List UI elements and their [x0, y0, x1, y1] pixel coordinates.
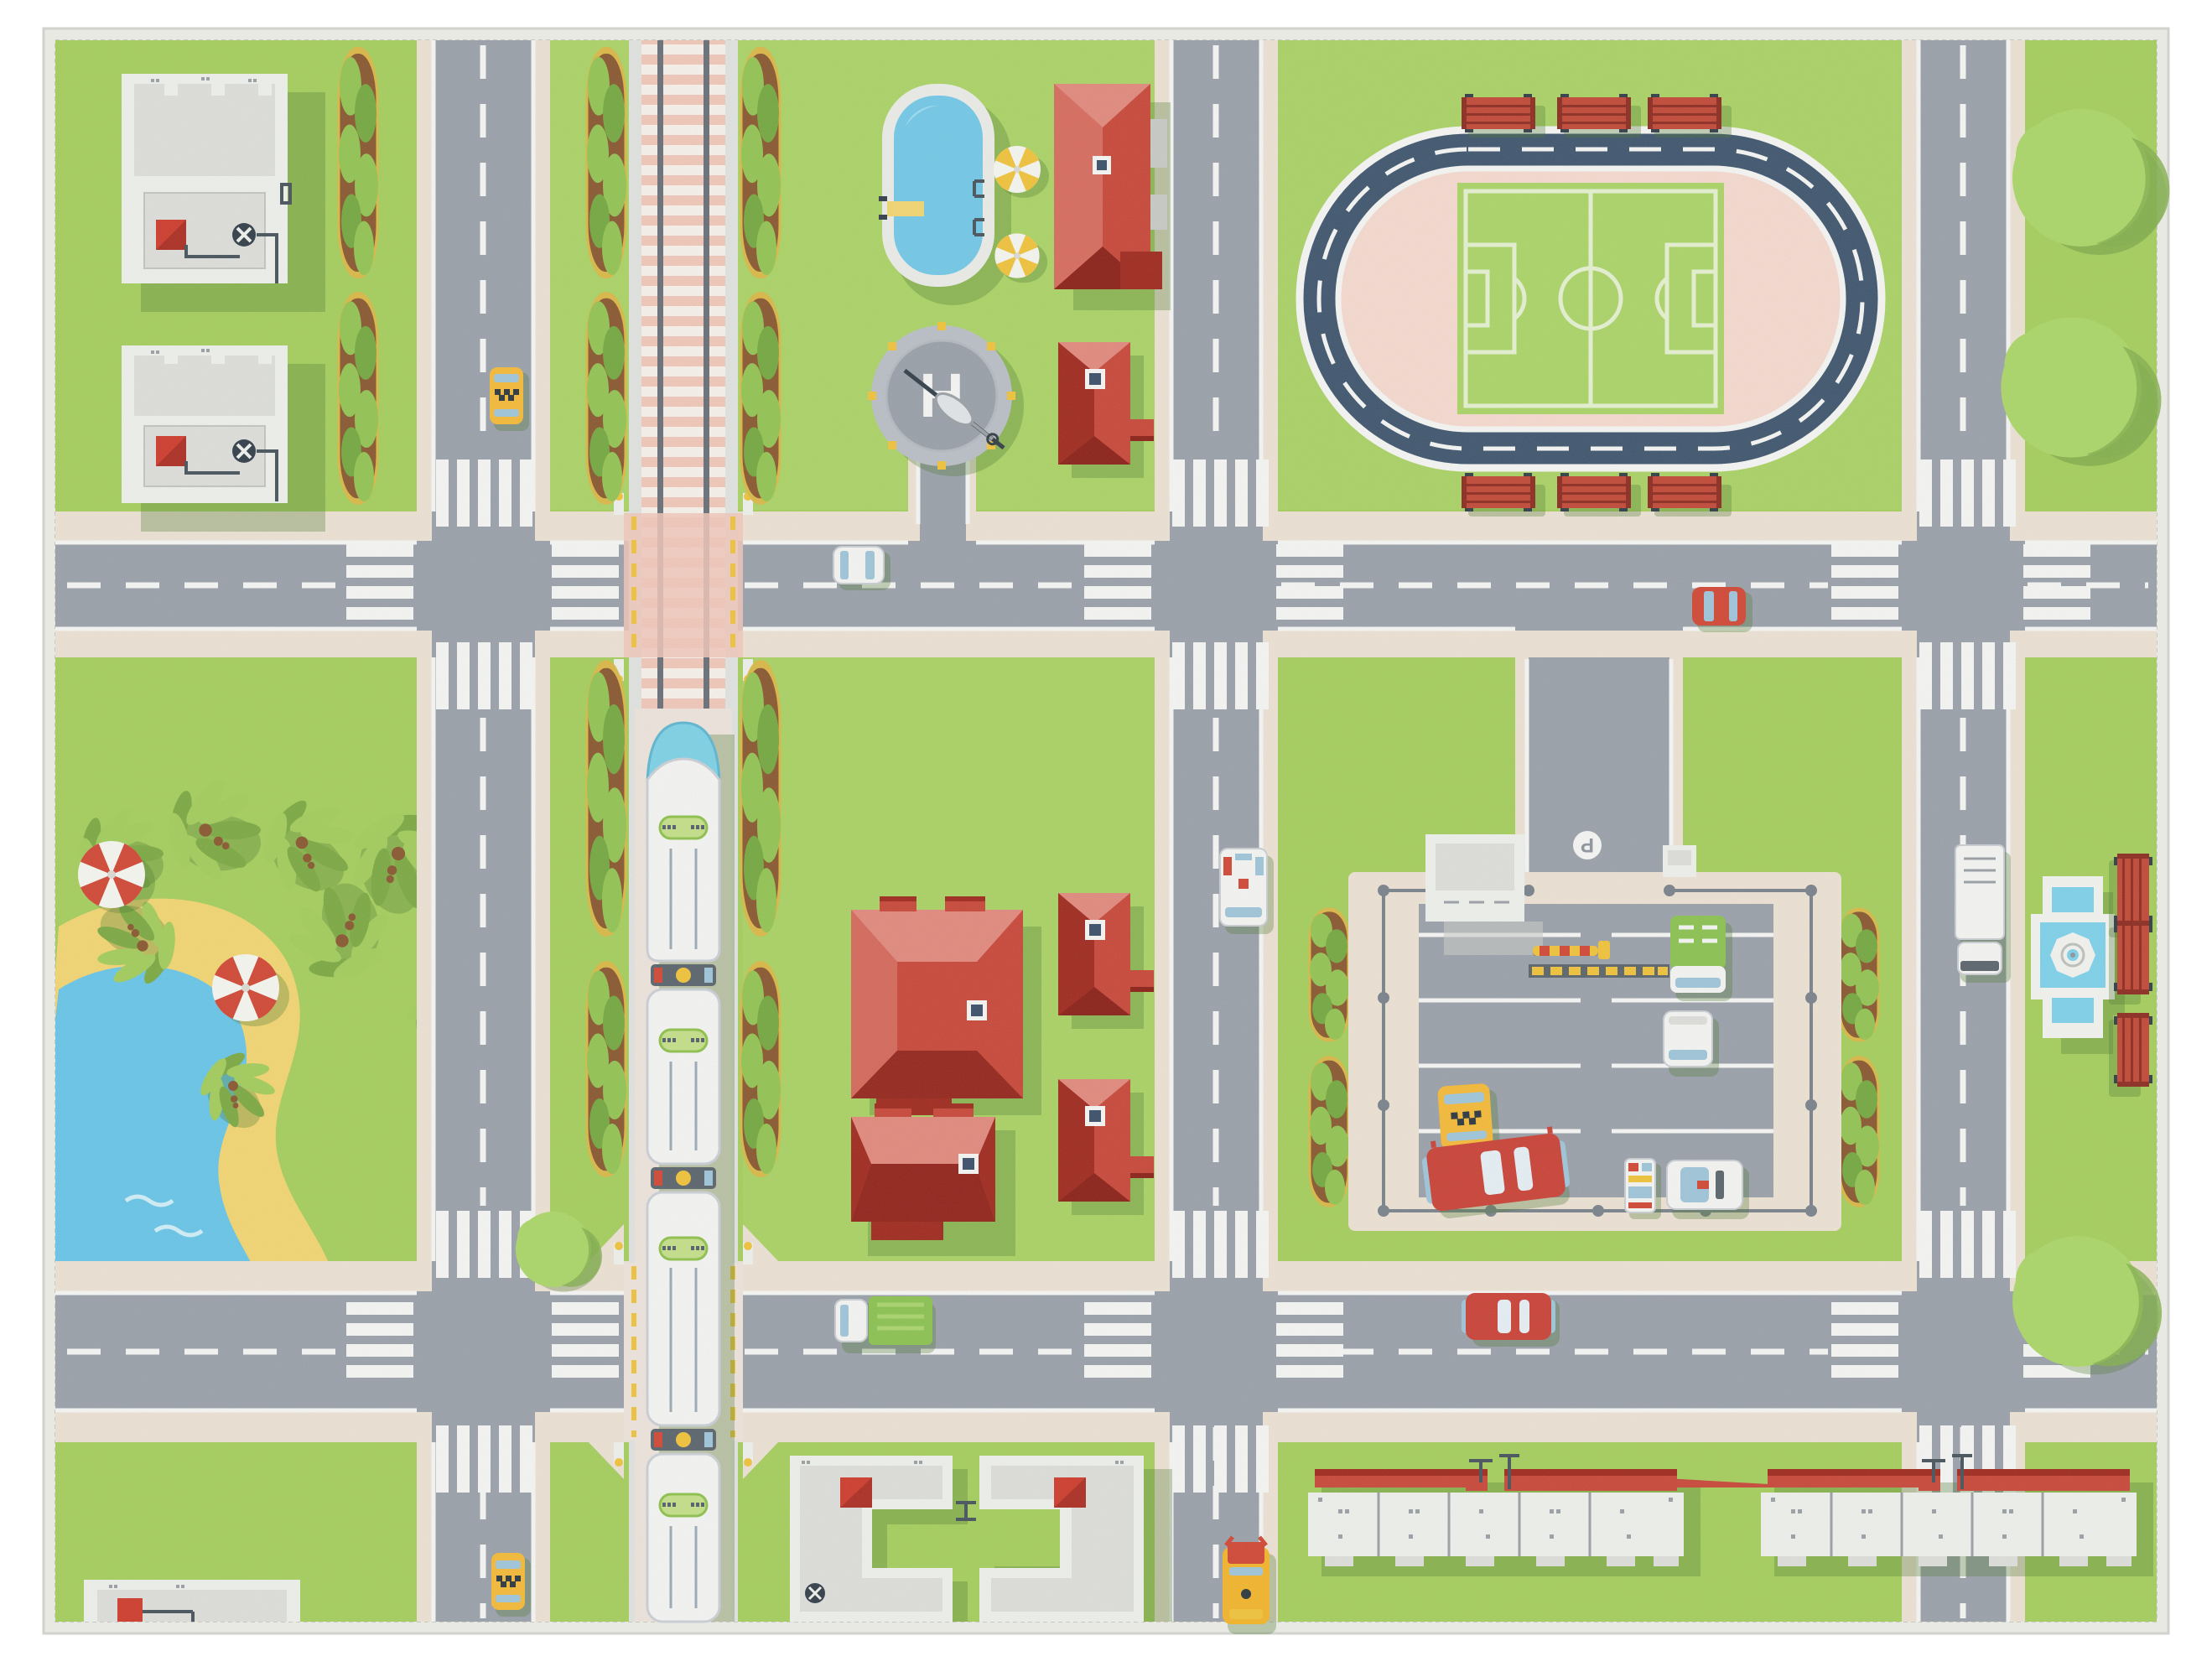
rug: H [44, 29, 2169, 1634]
fabric-texture [55, 40, 2157, 1622]
printed-map: H [55, 40, 2169, 1634]
city-play-rug: H [0, 0, 2212, 1677]
product-photo: H [0, 0, 2212, 1677]
